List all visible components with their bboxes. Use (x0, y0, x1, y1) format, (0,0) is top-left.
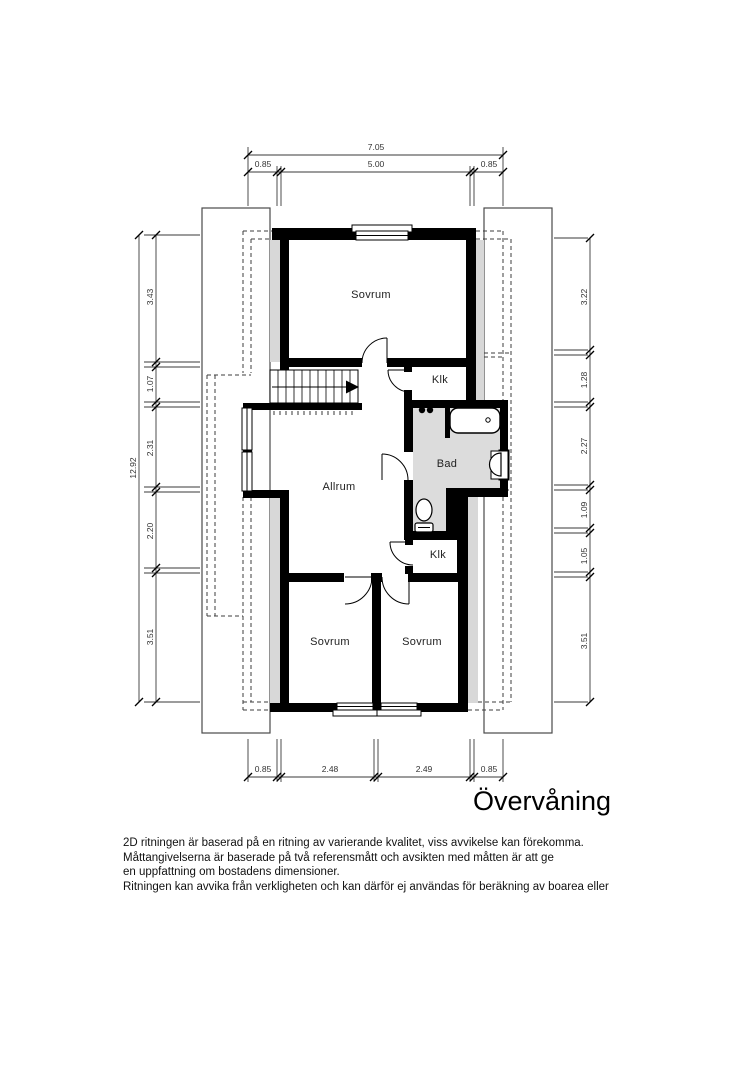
door-sovrum-bottom-left (345, 577, 372, 604)
dim-left-seg-4: 3.51 (145, 629, 155, 646)
dim-right-seg-5: 3.51 (579, 633, 589, 650)
wall-fixture-dot (427, 407, 433, 413)
door-klk-bottom (390, 542, 413, 565)
dim-bottom-seg-3: 0.85 (481, 764, 498, 774)
dim-left-seg-3: 2.20 (145, 523, 155, 540)
disclaimer-text: 2D ritningen är baserad på en ritning av… (123, 836, 609, 894)
top-window (352, 225, 412, 240)
dim-left-seg-1: 1.07 (145, 376, 155, 393)
dim-right-seg-3: 1.09 (579, 502, 589, 519)
dim-left-seg-0: 3.43 (145, 289, 155, 306)
door-bad (382, 454, 408, 480)
room-label-bad: Bad (437, 458, 457, 470)
left-wing (202, 208, 270, 733)
disclaimer-line: Ritningen kan avvika från verkligheten o… (123, 880, 609, 895)
floor-title: Övervåning (473, 786, 611, 817)
dim-left-seg-2: 2.31 (145, 440, 155, 457)
dim-top-seg-2: 0.85 (481, 159, 498, 169)
dim-right-seg-0: 3.22 (579, 289, 589, 306)
disclaimer-line: 2D ritningen är baserad på en ritning av… (123, 836, 609, 851)
door-klk-top (388, 370, 410, 392)
room-label-sovrum-top: Sovrum (351, 289, 391, 301)
disclaimer-line: en uppfattning om bostadens dimensioner. (123, 865, 609, 880)
dim-right-seg-2: 2.27 (579, 438, 589, 455)
toilet-bowl (416, 499, 432, 521)
dim-right-seg-4: 1.05 (579, 548, 589, 565)
bottom-window-right (377, 703, 421, 716)
room-label-klk-top: Klk (432, 374, 448, 386)
room-label-klk-bottom: Klk (430, 549, 446, 561)
stair-lower-flight-hatch (274, 411, 352, 415)
dim-left-total: 12.92 (128, 457, 138, 478)
door-sovrum-bottom-right (382, 577, 409, 604)
door-sovrum-top (362, 338, 387, 363)
bathtub (450, 408, 500, 433)
dim-top-total: 7.05 (368, 142, 385, 152)
bottom-window-left (333, 703, 377, 716)
dim-right-seg-1: 1.28 (579, 372, 589, 389)
dim-top-seg-0: 0.85 (255, 159, 272, 169)
wall-fixture-dot (419, 407, 425, 413)
left-dormer-window-lower (242, 452, 252, 491)
left-dormer-window-upper (242, 408, 252, 450)
dim-bottom-seg-1: 2.48 (322, 764, 339, 774)
room-label-sovrum-bottom-right: Sovrum (402, 636, 442, 648)
dim-bottom-seg-2: 2.49 (416, 764, 433, 774)
room-label-allrum: Allrum (323, 481, 356, 493)
floorplan-page: Sovrum Klk Bad Allrum Klk Sovrum Sovrum … (0, 0, 741, 1070)
dim-bottom-seg-0: 0.85 (255, 764, 272, 774)
dim-top-seg-1: 5.00 (368, 159, 385, 169)
room-label-sovrum-bottom-left: Sovrum (310, 636, 350, 648)
disclaimer-line: Måttangivelserna är baserade på två refe… (123, 851, 609, 866)
